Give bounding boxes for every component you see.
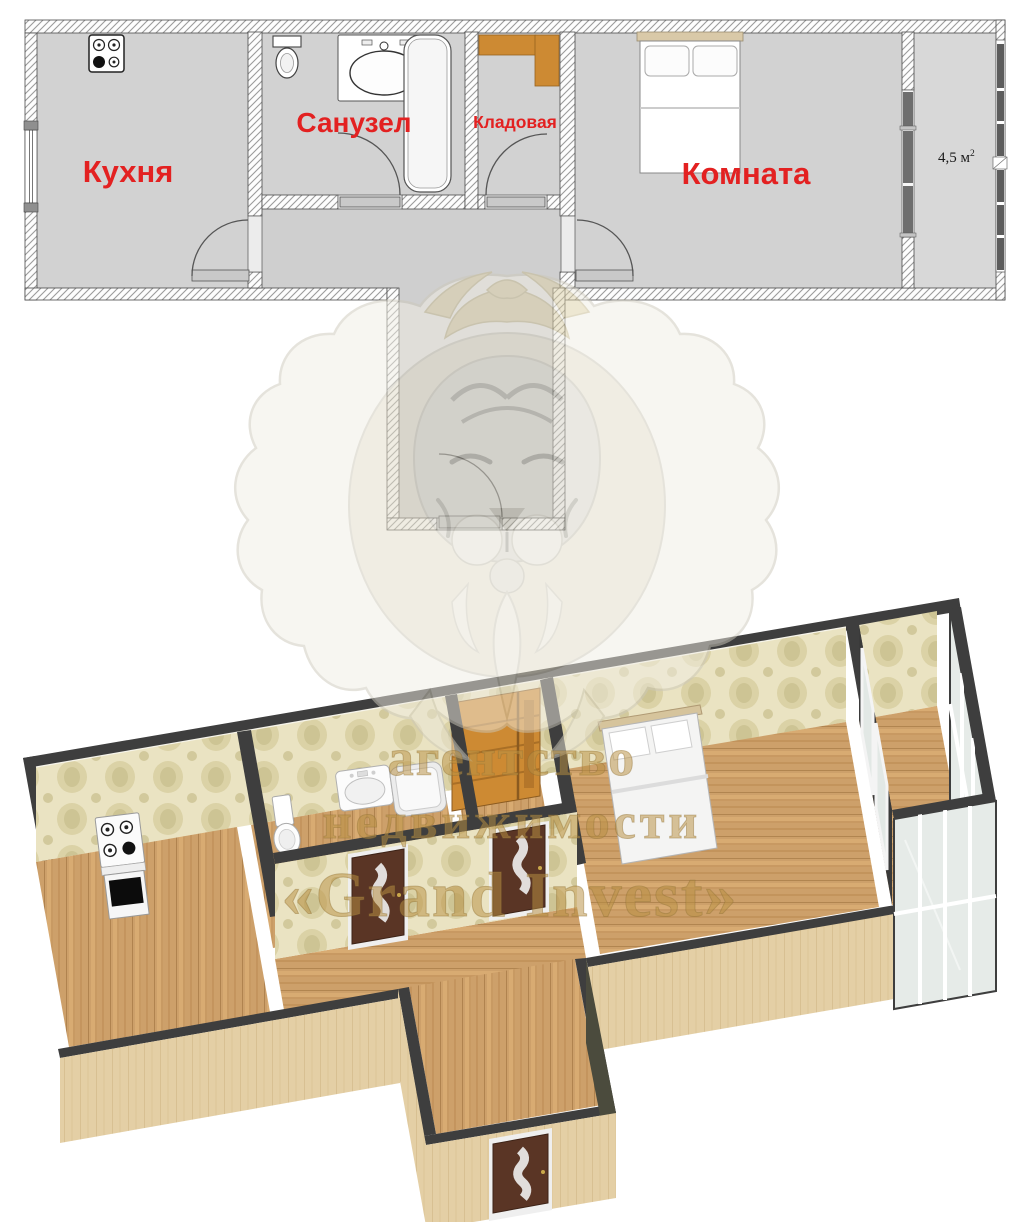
watermark-line2: недвижимости: [323, 793, 701, 849]
bathroom-label: Санузел: [296, 107, 411, 138]
balcony-area-label: 4,5 м2: [938, 149, 975, 166]
lion-chin: [490, 559, 524, 593]
watermark-line1: агентство: [388, 730, 637, 787]
kitchen-window-2d: [24, 121, 38, 212]
storage-label: Кладовая: [473, 112, 557, 132]
room-label: Комната: [682, 156, 812, 191]
corridor-floor-3d: [409, 959, 602, 1134]
watermark-line3: «Grand Invest»: [282, 859, 739, 930]
floorplan-image: Кухня Санузел Кладовая Комната 4,5 м2: [0, 0, 1024, 1222]
entrance-door-3d: [489, 1128, 552, 1221]
bed-icon: [637, 32, 743, 173]
kitchen-floor-3d: [36, 827, 270, 1047]
lion-muzzle-left: [452, 515, 502, 565]
lion-muzzle-right: [512, 515, 562, 565]
kitchen-label: Кухня: [83, 154, 174, 189]
stove-icon: [89, 35, 124, 72]
balcony-divider-window-2d: [900, 90, 916, 237]
